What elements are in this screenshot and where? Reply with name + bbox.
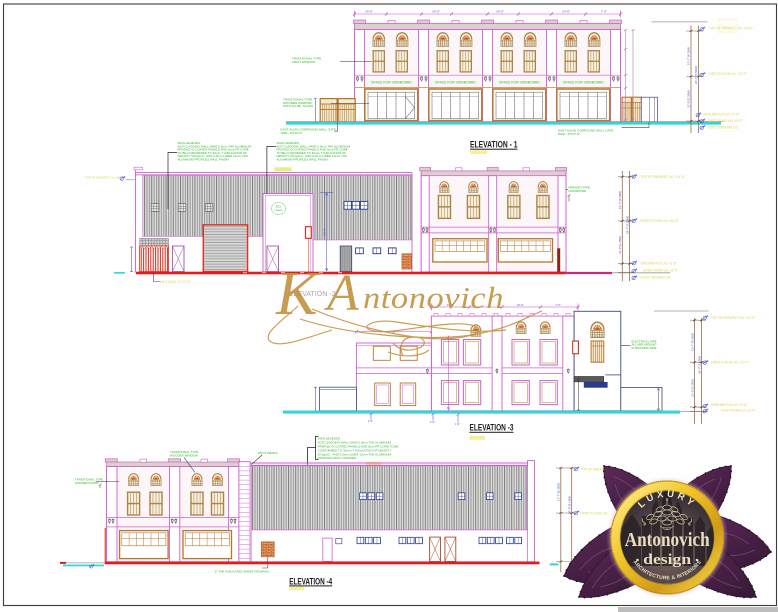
svg-text:11'-0"(3.35M): 11'-0"(3.35M) (618, 236, 622, 254)
svg-text:PAINT MARKS: PAINT MARKS (258, 451, 278, 455)
svg-text:GROUND FLR LVL +1'-6": GROUND FLR LVL +1'-6" (703, 112, 739, 116)
svg-text:FIRST FLOOR LVL +12'-0": FIRST FLOOR LVL +12'-0" (711, 361, 749, 365)
svg-text:SPACE FOR SIGNBOARD: SPACE FOR SIGNBOARD (499, 81, 540, 85)
svg-text:30'-0"(9.15M): 30'-0"(9.15M) (567, 496, 571, 514)
svg-text:13'-7"(4.15M): 13'-7"(4.15M) (687, 47, 691, 65)
svg-text:2" THK INSULATED SHEET ROOFING: 2" THK INSULATED SHEET ROOFING (215, 570, 270, 574)
svg-text:1'-6": 1'-6" (368, 420, 373, 423)
svg-text:SCALE 1:100: SCALE 1:100 (718, 24, 739, 28)
svg-text:FIRST FLOOR LVL +12'-0": FIRST FLOOR LVL +12'-0" (641, 219, 679, 223)
svg-text:GROUND FLR LVL +1'-6": GROUND FLR LVL +1'-6" (641, 261, 677, 265)
svg-text:24'-7"(7.50M): 24'-7"(7.50M) (625, 216, 629, 234)
svg-text:1'-6": 1'-6" (455, 423, 460, 426)
svg-text:7'-0": 7'-0" (601, 10, 607, 14)
svg-text:ALUMINUM PROFILES WALL FINISH: ALUMINUM PROFILES WALL FINISH (178, 158, 229, 162)
svg-text:EXIST ROAD LVL ±0'-0": EXIST ROAD LVL ±0'-0" (644, 268, 678, 272)
svg-text:SIZE - 8'X12'-0": SIZE - 8'X12'-0" (558, 132, 580, 136)
svg-text:ELEVATION - 1: ELEVATION - 1 (470, 140, 518, 150)
svg-text:7'-0": 7'-0" (555, 303, 561, 307)
svg-text:DWG NO 02: DWG NO 02 (718, 30, 737, 34)
svg-text:13'-7"(4.15M): 13'-7"(4.15M) (690, 333, 694, 351)
svg-text:M.S.GATE 12'-0" HT: M.S.GATE 12'-0" HT (162, 280, 191, 284)
svg-text:ntonovich: ntonovich (363, 280, 504, 315)
svg-text:TOP OF PARAPET LVL +24'-0": TOP OF PARAPET LVL +24'-0" (711, 316, 755, 320)
svg-text:ARCH WINDOW: ARCH WINDOW (292, 60, 315, 64)
svg-text:IN BUILDING SIDE: IN BUILDING SIDE (632, 346, 657, 350)
svg-text:GROUND FLR LVL +1'-6": GROUND FLR LVL +1'-6" (711, 403, 747, 407)
svg-text:EXIST ROAD LVL ±0'-0": EXIST ROAD LVL ±0'-0" (721, 409, 755, 413)
svg-text:14'-0": 14'-0" (496, 10, 504, 14)
svg-text:FIRST FLOOR LVL +12'-0": FIRST FLOOR LVL +12'-0" (709, 72, 747, 76)
svg-text:ECO: ECO (276, 205, 282, 209)
svg-text:FIRST FLOOR LVL: FIRST FLOOR LVL (581, 511, 609, 515)
svg-text:TOP OF PARAPET LVL +24'-0": TOP OF PARAPET LVL +24'-0" (85, 175, 124, 179)
svg-text:ELEVATION -4: ELEVATION -4 (289, 576, 332, 586)
svg-text:NOTE AREA: NOTE AREA (718, 18, 738, 22)
svg-text:PROFILES WALL FINISHED: PROFILES WALL FINISHED (318, 456, 357, 460)
svg-text:SPACE FOR SIGNBOARD: SPACE FOR SIGNBOARD (435, 81, 476, 85)
svg-text:14'-0": 14'-0" (516, 303, 523, 307)
svg-text:1'-6": 1'-6" (430, 421, 435, 424)
svg-text:SPACE FOR SIGNBOARD: SPACE FOR SIGNBOARD (371, 81, 412, 85)
svg-text:ELEVATION -3: ELEVATION -3 (470, 423, 514, 433)
svg-text:WITH ALUMI. GLASS: WITH ALUMI. GLASS (283, 104, 313, 108)
svg-text:17'-7"(5.35M): 17'-7"(5.35M) (557, 483, 561, 501)
svg-text:14'-0": 14'-0" (562, 10, 570, 14)
svg-text:SPACE FOR SIGNBOARD: SPACE FOR SIGNBOARD (563, 81, 604, 85)
svg-text:22'-0": 22'-0" (323, 228, 327, 236)
svg-text:11'-0"(3.35M): 11'-0"(3.35M) (690, 379, 694, 397)
svg-text:EXIST ROAD LVL ±0'-0": EXIST ROAD LVL ±0'-0" (708, 119, 742, 123)
svg-text:24'-7"(7.50M): 24'-7"(7.50M) (694, 66, 698, 84)
svg-text:Antonovich: Antonovich (625, 530, 710, 551)
svg-text:K: K (275, 260, 321, 328)
svg-text:A: A (324, 265, 359, 322)
svg-text:RAINWATER: RAINWATER (569, 189, 587, 193)
svg-text:11'-0"(3.35M): 11'-0"(3.35M) (687, 90, 691, 108)
svg-text:14'-0": 14'-0" (365, 10, 373, 14)
svg-text:EXIST GROUND LVL: EXIST GROUND LVL (641, 276, 672, 280)
svg-text:14'-0": 14'-0" (432, 10, 440, 14)
svg-text:ALUMINUM PROFILES WALL FINISH: ALUMINUM PROFILES WALL FINISH (277, 158, 328, 162)
svg-text:EXIST GROUND LVL: EXIST GROUND LVL (708, 126, 739, 130)
svg-text:SIZE - 8'X12'-0": SIZE - 8'X12'-0" (281, 131, 303, 135)
svg-text:13'-7"(4.15M): 13'-7"(4.15M) (618, 191, 622, 209)
svg-text:WOODEN WINDOW: WOODEN WINDOW (170, 453, 198, 457)
svg-text:24'-7"(7.50M): 24'-7"(7.50M) (697, 356, 701, 374)
svg-text:TOP OF PARAPET LVL +24'-0": TOP OF PARAPET LVL +24'-0" (641, 175, 685, 179)
svg-text:GREEN: GREEN (275, 210, 283, 212)
svg-text:design: design (643, 552, 692, 568)
